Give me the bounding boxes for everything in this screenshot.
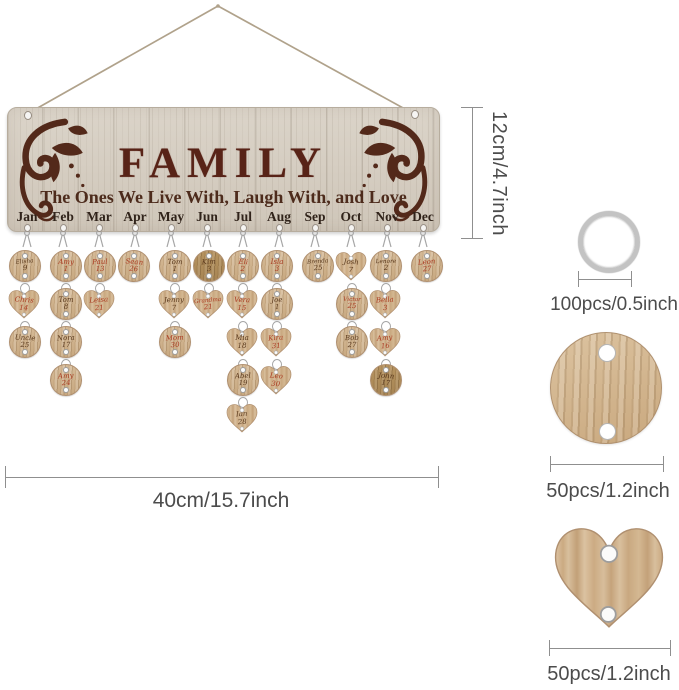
disc-date: 27 — [423, 266, 433, 274]
birthday-disc-circle: Sean26 — [118, 250, 150, 282]
disc-date: 17 — [381, 380, 390, 388]
birthday-disc-circle: Elisha9 — [9, 250, 41, 282]
wire-hanger-icon — [20, 229, 34, 249]
disc-date: 2 — [384, 265, 389, 272]
disc-date: 30 — [271, 380, 281, 388]
birthday-disc-heart: Josh7 — [334, 250, 368, 282]
disc-date: 3 — [207, 266, 212, 274]
birthday-disc-circle: Victor25 — [336, 288, 368, 320]
birthday-disc-circle: John17 — [370, 364, 402, 396]
disc-date: 25 — [347, 303, 356, 310]
disc-date: 1 — [173, 266, 178, 273]
birthday-disc-circle: Leon27 — [411, 250, 443, 282]
disc-date: 28 — [238, 418, 247, 426]
birthday-disc-chains: Elisha9Chris14Uncle25Amy1Tom8Nora17Amy24… — [0, 0, 679, 690]
wire-hanger-icon — [344, 229, 358, 249]
birthday-disc-circle: Eli2 — [227, 250, 259, 282]
disc-date: 8 — [64, 304, 68, 311]
disc-date: 14 — [19, 304, 28, 312]
birthday-disc-heart: Grandma21 — [191, 288, 225, 320]
disc-date: 1 — [275, 304, 280, 311]
disc-date: 25 — [313, 265, 322, 273]
birthday-disc-heart: Chris14 — [7, 288, 41, 320]
disc-date: 24 — [62, 380, 71, 388]
wire-hanger-icon — [128, 229, 142, 249]
disc-date: 21 — [204, 303, 214, 311]
birthday-disc-heart: Ian28 — [225, 402, 259, 434]
disc-date: 26 — [129, 266, 139, 274]
disc-date: 3 — [275, 266, 279, 273]
wire-hanger-icon — [164, 229, 178, 249]
birthday-disc-circle: Paul13 — [84, 250, 116, 282]
disc-date: 1 — [64, 266, 69, 273]
birthday-disc-heart: Mia18 — [225, 326, 259, 358]
product-dimension-diagram: FAMILY The Ones We Live With, Laugh With… — [0, 0, 679, 690]
disc-date: 17 — [62, 342, 71, 350]
birthday-disc-circle: Tom1 — [159, 250, 191, 282]
disc-date: 7 — [172, 304, 177, 311]
wire-hanger-icon — [236, 229, 250, 249]
disc-date: 30 — [171, 342, 180, 350]
wire-hanger-icon — [416, 229, 430, 249]
birthday-disc-circle: Abel19 — [227, 364, 259, 396]
wire-hanger-icon — [56, 229, 70, 249]
disc-date: 25 — [20, 342, 29, 350]
wire-hanger-icon — [92, 229, 106, 249]
birthday-disc-heart: Kira31 — [259, 326, 293, 358]
string-hole-left — [24, 111, 32, 120]
birthday-disc-heart: Leisa21 — [82, 288, 116, 320]
disc-date: 13 — [96, 266, 105, 274]
wire-hanger-icon — [272, 229, 286, 249]
birthday-disc-circle: Nora17 — [50, 326, 82, 358]
birthday-disc-circle: Joe1 — [261, 288, 293, 320]
wire-hanger-icon — [380, 229, 394, 249]
disc-date: 18 — [238, 343, 247, 350]
birthday-disc-circle: Bob27 — [336, 326, 368, 358]
wire-hanger-icon — [200, 229, 214, 249]
birthday-disc-circle: Mom30 — [159, 326, 191, 358]
birthday-disc-circle: Lenore2 — [370, 250, 402, 282]
disc-date: 31 — [272, 342, 281, 350]
disc-date: 15 — [237, 304, 246, 312]
birthday-disc-heart: Amy16 — [368, 326, 402, 358]
birthday-disc-circle: Brenda25 — [302, 250, 334, 282]
disc-date: 27 — [348, 342, 357, 349]
birthday-disc-heart: Bella3 — [368, 288, 402, 320]
birthday-disc-circle: Kim3 — [193, 250, 225, 282]
string-hole-right — [411, 110, 419, 119]
birthday-disc-circle: Isla3 — [261, 250, 293, 282]
disc-date: 9 — [23, 265, 28, 273]
disc-date: 7 — [348, 266, 353, 274]
wire-hanger-icon — [308, 229, 322, 249]
disc-date: 19 — [239, 380, 248, 388]
disc-date: 3 — [383, 304, 388, 312]
birthday-disc-heart: Jenny7 — [157, 288, 191, 320]
birthday-disc-circle: Amy24 — [50, 364, 82, 396]
disc-date: 2 — [240, 266, 245, 274]
birthday-disc-heart: Vera15 — [225, 288, 259, 320]
disc-date: 21 — [95, 304, 104, 312]
birthday-disc-circle: Amy1 — [50, 250, 82, 282]
birthday-disc-heart: Leo30 — [259, 364, 293, 396]
disc-date: 16 — [381, 342, 391, 350]
birthday-disc-circle: Tom8 — [50, 288, 82, 320]
birthday-disc-circle: Uncle25 — [9, 326, 41, 358]
